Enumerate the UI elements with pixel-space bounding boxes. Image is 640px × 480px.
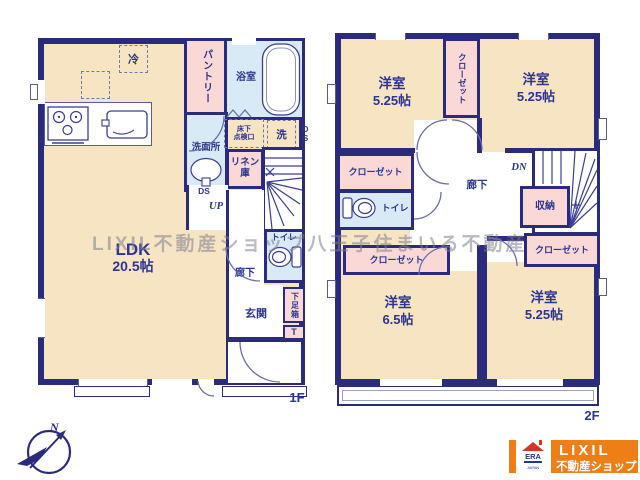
closet-sw-label: クローゼット [369,255,423,265]
watermark: LIXIL不動産ショップ八王子住まいる不動産 [92,229,527,256]
shoe-box: 下足箱 [283,287,305,323]
window-1f-left [38,298,45,338]
underfloor-line2: 点検口 [234,134,255,142]
washer-box: 洗 [267,120,296,149]
door-nub-1f [30,84,38,100]
window-2f-top-2 [518,33,549,40]
era-logo-box [518,440,548,473]
washer-label: 洗 [276,127,287,142]
shoebox-label: 下足箱 [290,292,299,319]
era-logo-bar [509,440,516,473]
closet-top-label: クローゼット [457,53,467,104]
dn-label: DN [505,162,533,174]
room-storage: 収納 [520,186,570,228]
up-label: UP [204,201,228,213]
window-2f-left-2 [327,280,336,298]
lixil-brand-sub: 不動産ショップ [556,458,637,474]
shoe-box-t: T [283,325,305,340]
ds-label: DS [192,187,216,197]
hallway-2f-label: 廊下 [455,180,499,192]
closet-west: クローゼット [337,153,414,192]
linen-line2: 庫 [231,169,260,180]
hall-2f-doorzone [414,120,477,154]
room-pantry: パントリー [184,38,228,115]
fridge-box: 冷 [119,45,148,73]
toilet-2f-label: トイレ [376,203,414,213]
entrance-label: 玄関 [232,308,280,320]
window-1f-bottom-1 [78,379,148,386]
balcony-inner-line [342,390,594,401]
room-sw-size: 6.5帖 [366,313,430,328]
window-1f-left-door [38,80,45,104]
stairs-1f [262,147,305,233]
pantry-label: パントリー [200,49,211,104]
room-linen: リネン 庫 [226,149,264,189]
closet-se: クローゼット [524,233,600,267]
compass-icon [17,430,70,473]
shoebox-t-label: T [291,327,297,337]
window-step-1f [74,386,150,397]
door-gap-1f-bottom [198,379,214,386]
room-ne-size: 5.25帖 [504,90,568,105]
storage-label: 収納 [535,201,555,212]
lixil-brand: LIXIL [559,442,611,459]
ldk-size: 20.5帖 [98,259,168,275]
hallway-1f-label: 廊下 [226,268,264,279]
closet-west-label: クローゼット [348,167,402,177]
closet-se-label: クローゼット [535,245,589,255]
closet-top: クローゼット [443,38,480,118]
kitchen-counter [44,102,152,146]
window-1f-bath-top [232,38,256,45]
floor-label-2f: 2F [577,409,607,424]
washroom-label: 洗面所 [186,143,226,154]
fridge-label: 冷 [128,51,139,67]
window-2f-top-1 [375,33,406,40]
wall-room-divider [477,245,487,385]
room-se-size: 5.25帖 [512,308,576,323]
window-2f-bottom-2 [497,379,563,386]
window-2f-left-1 [327,84,336,104]
wall-ne-west [477,118,482,153]
underfloor-line1: 床下 [234,126,255,134]
bath-label: 浴室 [226,72,266,83]
floor-plan-page: 冷 パントリー 浴室 洗面所 床下 点検口 洗 DS リネン 庫 DS UP ト… [0,0,640,480]
porch [226,340,303,385]
room-se-name: 洋室 [512,290,576,305]
room-nw-name: 洋室 [360,76,424,91]
north-label: N [50,420,59,435]
room-sw-name: 洋室 [366,295,430,310]
window-1f-bottom-2 [152,379,192,386]
window-2f-bottom-1 [380,379,442,386]
room-ne-name: 洋室 [504,72,568,87]
window-2f-right-1 [598,118,607,140]
ds-side-label: DS [299,123,310,145]
cupboard-box [81,71,110,99]
window-2f-right-2 [598,278,607,296]
floor-label-1f: 1F [282,391,312,406]
underfloor-hatch: 床下 点検口 [224,119,264,148]
room-nw-size: 5.25帖 [360,94,424,109]
